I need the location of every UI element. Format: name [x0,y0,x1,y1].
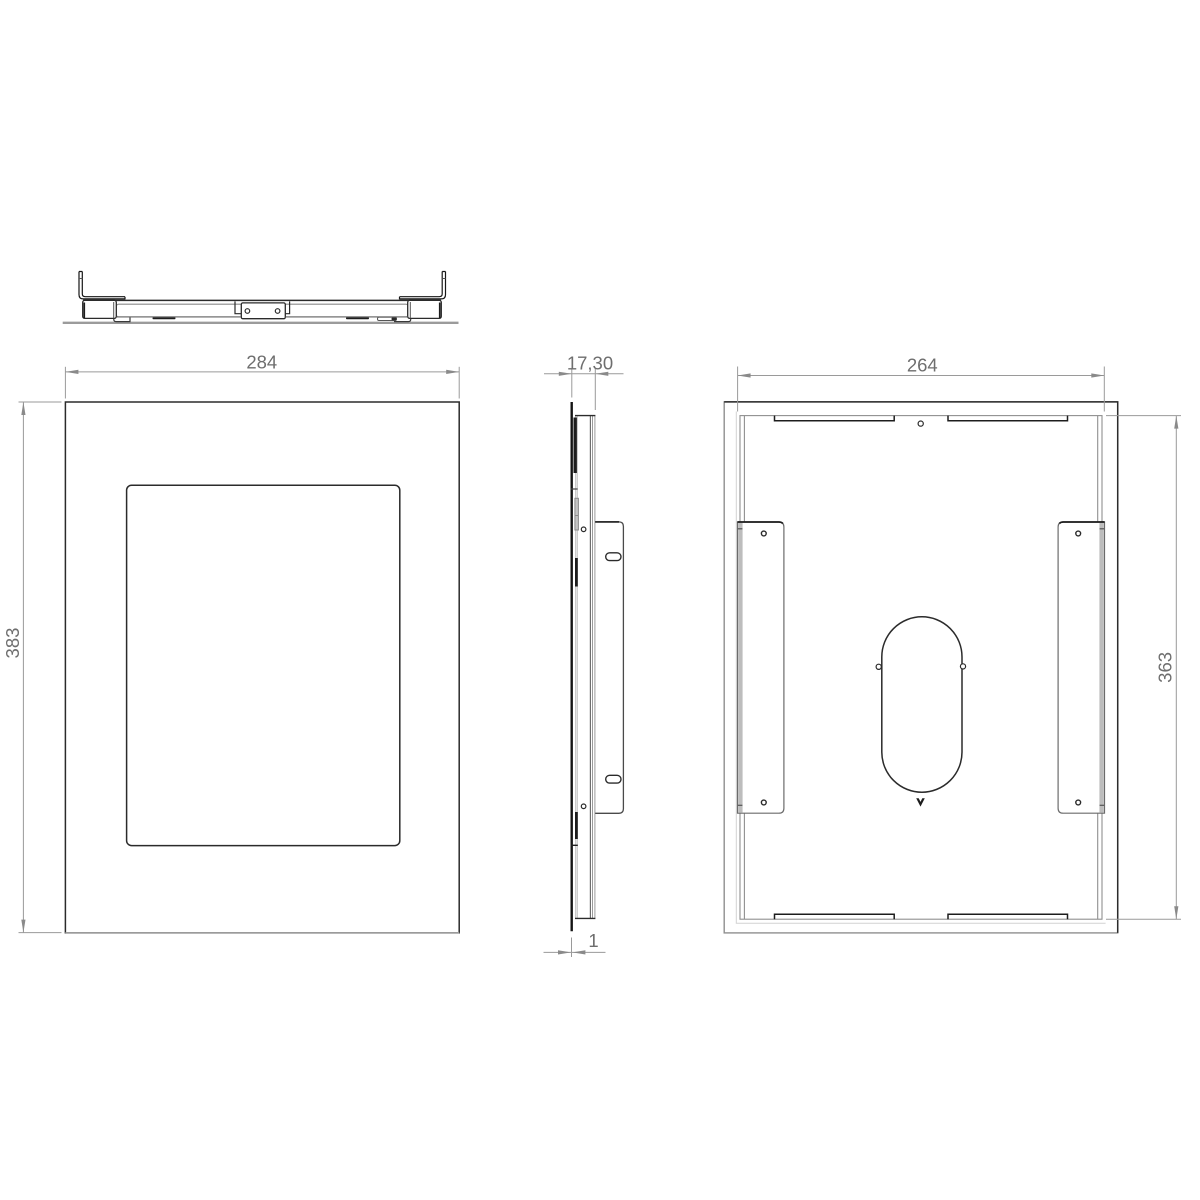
svg-text:17,30: 17,30 [567,353,613,374]
svg-text:383: 383 [2,628,23,659]
svg-text:1: 1 [588,930,598,951]
svg-text:363: 363 [1155,652,1176,683]
svg-text:264: 264 [907,355,938,376]
svg-text:284: 284 [246,351,277,372]
